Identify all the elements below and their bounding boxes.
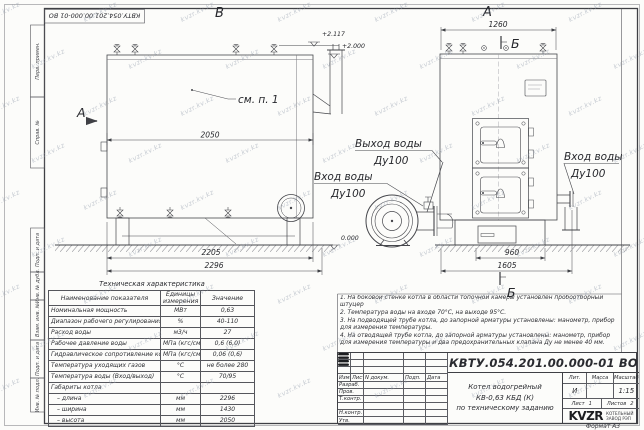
drain-valve-icon — [167, 207, 173, 217]
elevation-2117: +2.117 — [322, 31, 345, 38]
water-inlet-right-label: Вход воды — [564, 151, 623, 163]
valve-icon — [460, 44, 466, 54]
note-item: 2. Температура воды на входе 70°С, на вы… — [340, 310, 621, 317]
pipe-labels-left: Выход воды Ду100 Вход воды Ду100 — [314, 138, 442, 206]
boiler-supports — [112, 218, 304, 245]
pedestal — [455, 220, 545, 245]
table-header-row: Наименование показателя Единицы измерени… — [49, 291, 255, 306]
lit-mass-scale-values: И 1:15 — [563, 384, 639, 399]
hinge — [529, 128, 534, 136]
valve-icon — [114, 45, 120, 55]
margin-field-label: Подп. и дата — [35, 233, 41, 267]
view-b-side-view: В +2.117 +2.000 см. п. 1 А — [76, 6, 365, 245]
water-outlet-label: Выход воды — [355, 138, 422, 150]
sheet-numbers: Лист1 Листов2 — [563, 399, 639, 409]
table-row: Температура уходящих газов°Сне более 280 — [49, 361, 255, 372]
dim-1260: 1260 — [441, 20, 556, 50]
table-row: Расход водым3/ч27 — [49, 328, 255, 339]
view-a-front-view: А 1260 Б — [440, 5, 623, 300]
water-inlet-right-dn: Ду100 — [570, 168, 606, 180]
tech-table: Наименование показателя Единицы измерени… — [48, 290, 255, 427]
table-row: Габариты котла — [49, 383, 255, 394]
note-item: 3. На подводящей трубе котла, до запорно… — [340, 318, 621, 332]
nameplate — [525, 80, 546, 96]
note-item: 1. На боковой стенке котла в области топ… — [340, 295, 621, 309]
company-logo: KVZR КОТЕЛЬНЫЙ ЗАВОД РЭП — [563, 409, 639, 423]
peephole — [497, 189, 505, 198]
tech-table-title: Техническая характеристика — [48, 280, 256, 288]
view-b-label: В — [215, 6, 224, 21]
elevation-0: 0.000 — [341, 235, 359, 242]
valve-icon — [233, 45, 239, 55]
valve-icon — [132, 45, 138, 55]
product-title: Котел водогрейный КВ-0,63 КБД (К) по тех… — [448, 373, 563, 423]
table-row: Диапазон рабочего регулирования%40-110 — [49, 317, 255, 328]
table-row: Гидравлическое сопротивление котлаМПа (к… — [49, 350, 255, 361]
drain-valve-icon — [225, 207, 231, 217]
document-number: КВТУ.054.201.00.000-01 ВО — [448, 353, 639, 373]
nozzle-icon — [504, 46, 509, 51]
see-note-label: см. п. 1 — [238, 94, 279, 106]
margin-field-label: Взам. инв. № — [35, 303, 41, 337]
margin-field-label: Подп. и дата — [35, 342, 41, 376]
logo-subtext: КОТЕЛЬНЫЙ ЗАВОД РЭП — [606, 411, 633, 422]
hinge — [529, 178, 534, 186]
margin-field-label: Инв. № дубл. — [35, 269, 41, 303]
drain-valve-icon — [117, 207, 123, 217]
note-item: 4. На отводящей трубе котла, до запорной… — [340, 333, 621, 347]
svg-text:2296: 2296 — [204, 261, 223, 270]
svg-text:Б: Б — [511, 36, 520, 51]
table-row: Номинальная мощностьМВт0,63 — [49, 306, 255, 317]
furnace-door-bottom — [473, 168, 534, 218]
inlet-fitting — [557, 191, 580, 230]
peephole — [497, 139, 505, 148]
ash-door — [478, 226, 516, 243]
table-row: – длинамм2296 — [49, 394, 255, 405]
table-row: – высотамм2050 — [49, 416, 255, 427]
valve-icon — [271, 45, 277, 55]
table-row: Температура воды (Вход/выход)°С70/95 — [49, 372, 255, 383]
svg-text:1260: 1260 — [488, 20, 507, 29]
water-inlet-left-label: Вход воды — [314, 171, 373, 183]
notes: 1. На боковой стенке котла в области топ… — [340, 295, 621, 347]
title-block-revision-grid: Изм. Лист N докум. Подп. Дата Разраб. Пр… — [338, 353, 448, 423]
svg-text:2050: 2050 — [200, 131, 219, 140]
table-row: Рабочее давление водыМПа (кгс/см2)0,6 (6… — [49, 339, 255, 350]
dim-2050: 2050 — [107, 131, 313, 146]
tech-characteristics: Техническая характеристика Наименование … — [48, 280, 256, 427]
title-block: Изм. Лист N докум. Подп. Дата Разраб. Пр… — [337, 352, 637, 424]
valve-icon — [540, 44, 546, 54]
table-row: – ширинамм1430 — [49, 405, 255, 416]
furnace-door-top — [473, 119, 534, 169]
dim-2205: 2205 — [107, 222, 313, 262]
water-inlet-left-dn: Ду100 — [330, 188, 366, 200]
valve-icon — [446, 44, 452, 54]
logo-text: KVZR — [568, 409, 603, 423]
section-a-label: А — [76, 105, 86, 120]
format-label: Формат А3 — [572, 423, 634, 430]
elevation-2000: +2.000 — [342, 43, 365, 50]
margin-field-label: Справ. № — [35, 120, 41, 144]
nozzle-icon — [482, 46, 487, 51]
kvzr-logo-icon — [338, 353, 349, 366]
hinge — [529, 200, 534, 208]
ground: 0.000 2205 2296 — [55, 222, 630, 275]
view-a-label: А — [482, 5, 492, 20]
svg-text:1605: 1605 — [497, 261, 516, 270]
svg-text:2205: 2205 — [201, 248, 220, 257]
water-outlet-dn: Ду100 — [373, 155, 409, 167]
doc-number-flipped: КВТУ.054.201.00.000-01 ВО — [49, 12, 140, 20]
margin-field-label: Инв. № подл. — [35, 378, 41, 413]
flue-duct — [313, 44, 345, 114]
drawing-sheet: Перв. примен. Справ. № Подп. и дата Инв.… — [0, 0, 644, 430]
lit-mass-scale-header: Лит. Масса Масштаб — [563, 373, 639, 384]
margin-field-label: Перв. примен. — [35, 42, 41, 80]
hinge — [529, 150, 534, 158]
